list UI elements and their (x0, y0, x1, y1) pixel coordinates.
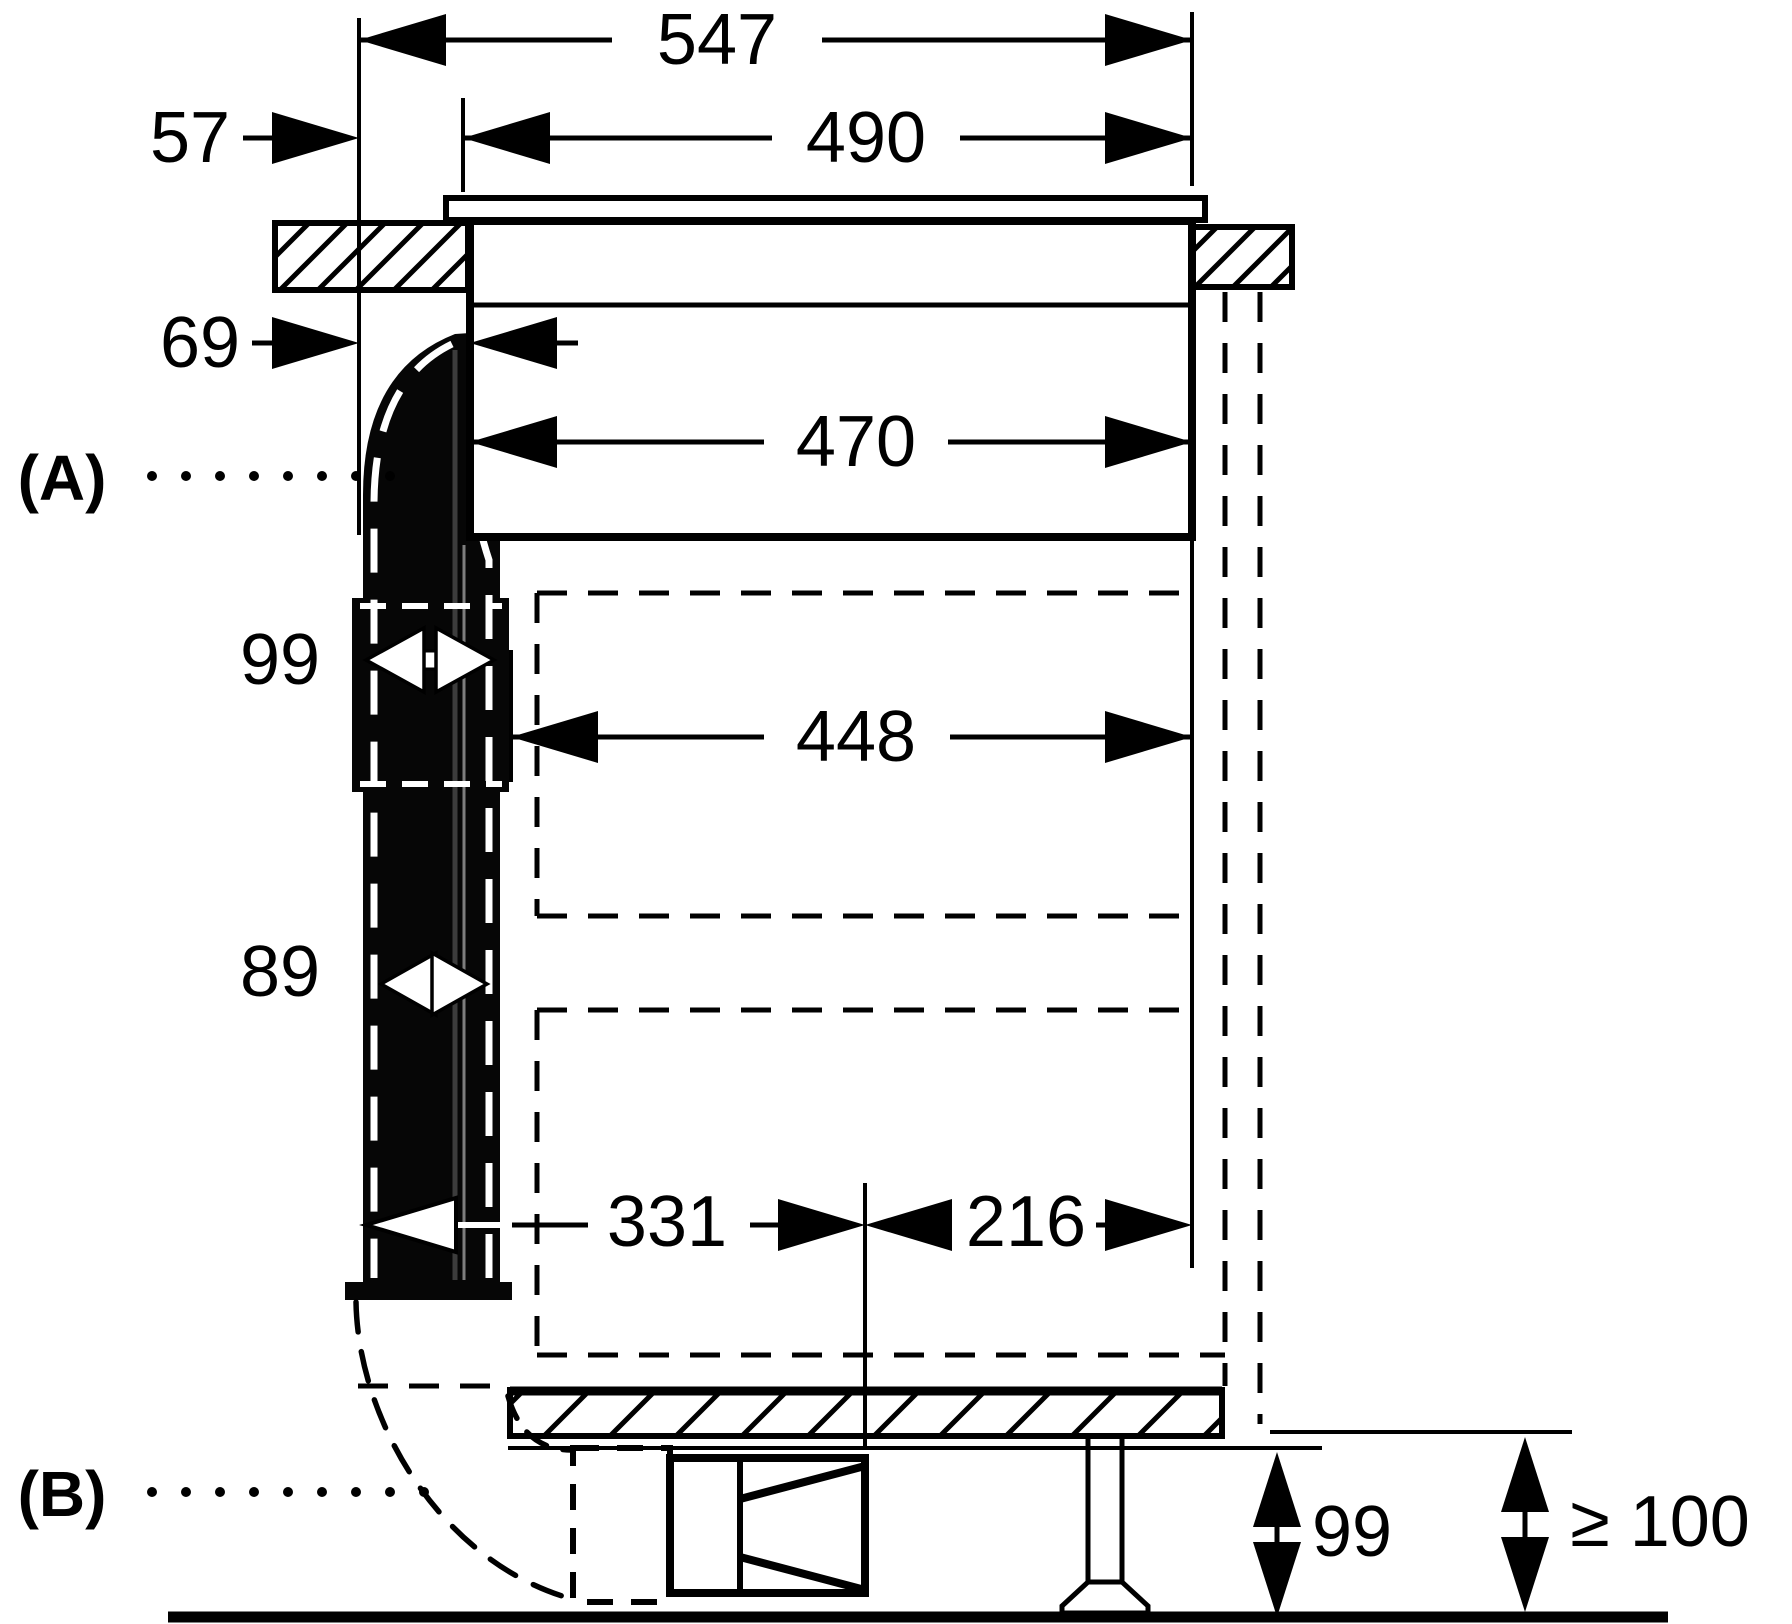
arrow-up-icon (1501, 1437, 1549, 1512)
leg-foot (1062, 1582, 1148, 1613)
outlet-transition-box-dashed (573, 1448, 670, 1602)
dim-back-to-cutout-value: 69 (160, 303, 240, 383)
blower-unit (670, 1458, 865, 1593)
arrow-left-icon (511, 711, 598, 763)
outlet-elbow-outer-dashed (356, 1302, 572, 1599)
arrow-left-icon (463, 112, 550, 164)
dim-duct-to-center-value: 331 (607, 1182, 727, 1262)
label-a: (A) (18, 442, 107, 514)
dim-cabinet-clearance: 448 (511, 650, 1192, 782)
arrow-right-icon (1105, 1199, 1192, 1251)
hob-unit (446, 198, 1205, 537)
arrow-right-icon (1105, 14, 1192, 66)
dim-cutout-width: 490 (463, 98, 1192, 192)
left-worktop-section (275, 223, 468, 290)
label-b: (B) (18, 1458, 107, 1530)
blower-housing (670, 1458, 865, 1593)
dim-floor-clearance: ≥ 100 (1501, 1437, 1750, 1612)
diagram-canvas: 547 57 490 69 470 99 (0, 0, 1792, 1624)
dim-body-width-value: 470 (796, 402, 916, 482)
arrow-right-icon (272, 112, 359, 164)
arrow-down-icon (1501, 1537, 1549, 1612)
dim-cabinet-clearance-value: 448 (796, 697, 916, 777)
dim-total-depth: 547 (359, 0, 1192, 80)
dim-back-to-glass: 57 (150, 98, 359, 178)
arrow-right-icon (1105, 112, 1192, 164)
right-worktop-hatch (1193, 227, 1292, 287)
duct-column (363, 610, 500, 1290)
dim-total-depth-value: 547 (657, 0, 777, 80)
hob-body (470, 221, 1192, 537)
left-worktop-hatch (275, 223, 468, 290)
dim-back-to-glass-value: 57 (150, 98, 230, 178)
arrow-down-icon (1253, 1542, 1301, 1617)
arrow-right-icon (778, 1199, 865, 1251)
installation-diagram: 547 57 490 69 470 99 (0, 0, 1792, 1624)
dim-plinth-height: 99 (1253, 1452, 1392, 1617)
dim-duct-coupler-value: 99 (240, 620, 320, 700)
label-b-group: (B) (18, 1458, 438, 1530)
arrow-left-icon (865, 1199, 952, 1251)
duct-foot-flange (345, 1282, 512, 1300)
dim-center-to-wall: 216 (865, 1182, 1192, 1262)
dim-center-to-wall-value: 216 (966, 1182, 1086, 1262)
hob-glass-panel (446, 198, 1205, 220)
duct-outlet-dashed (356, 1302, 670, 1602)
arrow-up-icon (1253, 1452, 1301, 1527)
arrow-right-icon (272, 317, 359, 369)
arrow-left-icon (359, 14, 446, 66)
dim-floor-clearance-value: ≥ 100 (1570, 1482, 1750, 1562)
dim-duct-width-value: 89 (240, 932, 320, 1012)
arrow-right-icon (1105, 711, 1192, 763)
cabinet-leg (1062, 1437, 1148, 1613)
right-worktop-section (1193, 227, 1292, 287)
dim-plinth-height-value: 99 (1312, 1492, 1392, 1572)
dim-cutout-width-value: 490 (806, 98, 926, 178)
label-a-group: (A) (18, 442, 392, 514)
